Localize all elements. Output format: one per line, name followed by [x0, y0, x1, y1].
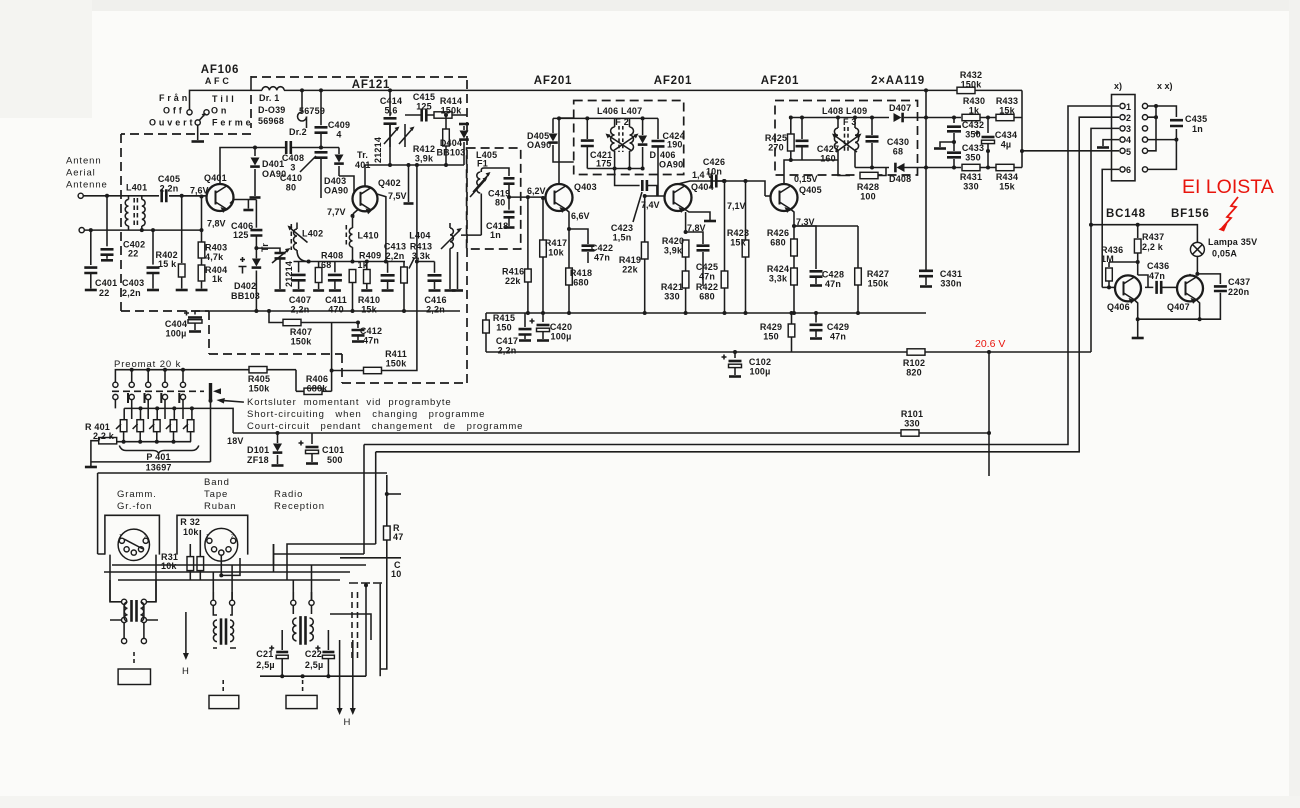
svg-text:R428: R428 [857, 182, 879, 192]
svg-text:AF201: AF201 [761, 75, 800, 87]
svg-text:330: 330 [904, 419, 920, 429]
svg-text:F r å n: F r å n [159, 93, 187, 103]
svg-text:R413: R413 [410, 242, 432, 252]
svg-text:C403: C403 [122, 278, 144, 288]
svg-text:6,2V: 6,2V [527, 186, 546, 196]
svg-text:150: 150 [496, 323, 512, 333]
svg-text:C430: C430 [887, 137, 909, 147]
svg-text:2,2n: 2,2n [291, 305, 310, 315]
svg-text:C102: C102 [749, 357, 771, 367]
svg-text:R421: R421 [661, 282, 683, 292]
svg-text:2,5µ: 2,5µ [256, 660, 275, 670]
svg-text:680k: 680k [307, 384, 329, 394]
svg-text:R406: R406 [306, 374, 328, 384]
svg-text:R433: R433 [996, 96, 1018, 106]
svg-text:R411: R411 [385, 349, 407, 359]
svg-text:1k: 1k [969, 106, 980, 116]
svg-text:4µ: 4µ [1001, 140, 1012, 150]
svg-text:L410: L410 [358, 231, 379, 241]
svg-text:47n: 47n [830, 332, 846, 342]
svg-text:5,6: 5,6 [384, 106, 397, 116]
svg-text:Q406: Q406 [1107, 302, 1130, 312]
svg-text:270: 270 [768, 143, 784, 153]
svg-text:1k: 1k [358, 260, 369, 270]
svg-text:BC148: BC148 [1106, 208, 1146, 220]
svg-text:Antenne: Antenne [66, 180, 108, 191]
svg-text:10: 10 [391, 569, 401, 579]
svg-text:Gr.-fon: Gr.-fon [117, 501, 152, 512]
svg-text:21214: 21214 [373, 137, 383, 163]
svg-text:C405: C405 [158, 174, 180, 184]
svg-text:R410: R410 [358, 295, 380, 305]
svg-text:80: 80 [495, 198, 505, 208]
svg-text:10n: 10n [706, 167, 722, 177]
svg-text:2: 2 [1126, 113, 1131, 123]
svg-text:Kortsluter momentant vid pr: Kortsluter momentant vid programbyte [247, 397, 452, 408]
svg-text:C407: C407 [289, 295, 311, 305]
svg-text:D101: D101 [247, 445, 269, 455]
svg-text:7,4V: 7,4V [641, 200, 660, 210]
svg-text:6: 6 [1126, 165, 1131, 175]
svg-text:47n: 47n [699, 272, 715, 282]
svg-text:Aerial: Aerial [66, 168, 96, 179]
svg-text:Band: Band [204, 477, 230, 488]
svg-text:R429: R429 [760, 322, 782, 332]
svg-text:AF106: AF106 [201, 64, 240, 76]
svg-text:R405: R405 [248, 374, 270, 384]
svg-text:150: 150 [763, 332, 779, 342]
svg-text:L401: L401 [126, 183, 147, 193]
svg-text:2,2 k: 2,2 k [93, 431, 115, 441]
svg-text:x): x) [1114, 81, 1122, 91]
svg-text:R424: R424 [767, 264, 789, 274]
svg-text:R414: R414 [440, 96, 462, 106]
svg-text:Q407: Q407 [1167, 302, 1190, 312]
svg-text:C423: C423 [611, 223, 633, 233]
svg-text:80: 80 [286, 183, 296, 193]
svg-text:C437: C437 [1228, 277, 1250, 287]
svg-text:3,9k: 3,9k [664, 246, 683, 256]
svg-text:D: D [650, 150, 657, 160]
svg-text:R425: R425 [765, 133, 787, 143]
svg-text:2,2 k: 2,2 k [1142, 242, 1164, 252]
svg-text:15 k: 15 k [158, 259, 177, 269]
svg-text:68: 68 [321, 260, 331, 270]
svg-text:820: 820 [906, 368, 922, 378]
svg-text:125: 125 [233, 230, 249, 240]
svg-text:680: 680 [573, 278, 589, 288]
svg-text:R423: R423 [727, 228, 749, 238]
svg-text:R417: R417 [545, 238, 567, 248]
svg-text:A F C: A F C [205, 76, 229, 86]
svg-text:406: 406 [660, 150, 676, 160]
svg-text:100µ: 100µ [749, 367, 770, 377]
svg-text:C417: C417 [496, 336, 518, 346]
svg-text:2,2n: 2,2n [426, 305, 445, 315]
svg-text:Gramm.: Gramm. [117, 489, 157, 500]
svg-text:47n: 47n [825, 279, 841, 289]
svg-text:R416: R416 [502, 267, 524, 277]
svg-text:C416: C416 [424, 295, 446, 305]
svg-text:R434: R434 [996, 172, 1018, 182]
svg-text:7,1V: 7,1V [727, 201, 746, 211]
svg-text:7,5V: 7,5V [388, 191, 407, 201]
svg-text:C428: C428 [822, 270, 844, 280]
svg-text:C412: C412 [360, 326, 382, 336]
svg-text:22k: 22k [622, 265, 638, 275]
svg-text:BF156: BF156 [1171, 208, 1210, 220]
svg-text:150k: 150k [868, 279, 890, 289]
svg-text:7,6V: 7,6V [190, 186, 209, 196]
svg-text:100: 100 [860, 192, 876, 202]
svg-text:1: 1 [1126, 102, 1131, 112]
svg-text:D402: D402 [234, 281, 256, 291]
svg-text:C401: C401 [95, 278, 117, 288]
svg-text:100µ: 100µ [550, 332, 571, 342]
svg-text:C436: C436 [1147, 261, 1169, 271]
svg-text:O n: O n [211, 106, 227, 116]
svg-text:P 401: P 401 [146, 452, 170, 462]
svg-text:2: 2 [231, 534, 234, 540]
svg-text:Dr. 1: Dr. 1 [259, 93, 280, 103]
svg-text:R102: R102 [903, 358, 925, 368]
svg-text:C404: C404 [165, 319, 187, 329]
svg-text:C22: C22 [305, 649, 322, 659]
svg-text:150k: 150k [249, 384, 271, 394]
svg-text:R407: R407 [290, 327, 312, 337]
svg-text:F1: F1 [477, 159, 488, 169]
svg-text:22k: 22k [505, 276, 521, 286]
svg-text:x x): x x) [1157, 81, 1173, 91]
svg-text:D408: D408 [889, 174, 911, 184]
svg-text:1: 1 [206, 534, 209, 540]
svg-text:Dr.2: Dr.2 [289, 127, 307, 137]
svg-text:R427: R427 [867, 269, 889, 279]
svg-text:L404: L404 [409, 231, 430, 241]
svg-text:BB103: BB103 [231, 291, 260, 301]
svg-text:C21: C21 [256, 649, 273, 659]
svg-text:BB103: BB103 [436, 148, 465, 158]
svg-text:47n: 47n [1149, 271, 1165, 281]
svg-text:500: 500 [327, 455, 343, 465]
svg-text:R426: R426 [767, 228, 789, 238]
svg-text:C101: C101 [322, 445, 344, 455]
svg-text:C431: C431 [940, 269, 962, 279]
svg-text:680: 680 [770, 238, 786, 248]
svg-text:2,2n: 2,2n [498, 346, 517, 356]
svg-text:7,8V: 7,8V [207, 219, 226, 229]
svg-text:2×AA119: 2×AA119 [871, 75, 925, 87]
svg-text:D404: D404 [440, 138, 462, 148]
svg-text:C434: C434 [995, 130, 1017, 140]
svg-text:15k: 15k [361, 305, 377, 315]
svg-text:Ruban: Ruban [204, 501, 237, 512]
svg-text:0,05A: 0,05A [1212, 249, 1237, 259]
svg-text:Q402: Q402 [378, 178, 401, 188]
svg-text:4: 4 [336, 130, 341, 140]
svg-text:OA90: OA90 [527, 140, 551, 150]
svg-text:1,5n: 1,5n [613, 233, 632, 243]
svg-text:13697: 13697 [146, 463, 172, 473]
svg-text:350: 350 [965, 153, 981, 163]
svg-text:Q403: Q403 [574, 182, 597, 192]
svg-text:L408 L409: L408 L409 [822, 106, 867, 116]
svg-text:6,6V: 6,6V [571, 211, 590, 221]
svg-text:F e r m e: F e r m e [212, 118, 251, 128]
svg-text:2: 2 [144, 534, 147, 540]
svg-text:18V: 18V [227, 436, 244, 446]
svg-text:470: 470 [328, 305, 344, 315]
svg-text:C433: C433 [962, 143, 984, 153]
svg-text:O u v e r t: O u v e r t [149, 118, 193, 128]
svg-text:4,7k: 4,7k [205, 252, 224, 262]
svg-text:C435: C435 [1185, 114, 1207, 124]
svg-text:2,2n: 2,2n [386, 251, 405, 261]
svg-text:22: 22 [128, 249, 138, 259]
svg-text:C414: C414 [380, 96, 402, 106]
svg-text:Q405: Q405 [799, 185, 822, 195]
svg-text:2,2n: 2,2n [160, 184, 179, 194]
svg-text:AF201: AF201 [534, 75, 573, 87]
svg-text:2,2n: 2,2n [122, 288, 141, 298]
svg-text:22: 22 [99, 288, 109, 298]
svg-text:R420: R420 [662, 236, 684, 246]
svg-text:C413: C413 [384, 242, 406, 252]
svg-text:R415: R415 [493, 313, 515, 323]
svg-text:Reception: Reception [274, 501, 325, 512]
svg-text:Tr.: Tr. [357, 150, 368, 160]
svg-text:150k: 150k [291, 337, 313, 347]
svg-text:47: 47 [393, 532, 403, 542]
svg-text:150k: 150k [961, 80, 983, 90]
svg-text:R408: R408 [321, 251, 343, 261]
svg-text:R412: R412 [413, 144, 435, 154]
svg-text:R432: R432 [960, 70, 982, 80]
svg-text:Tape: Tape [204, 489, 228, 500]
svg-text:D403: D403 [324, 176, 346, 186]
svg-text:OA90: OA90 [659, 160, 683, 170]
svg-text:160: 160 [820, 154, 836, 164]
svg-text:O f f: O f f [163, 106, 183, 116]
svg-text:OA90: OA90 [324, 186, 348, 196]
svg-text:10k: 10k [548, 248, 564, 258]
svg-text:680: 680 [699, 292, 715, 302]
svg-text:5: 5 [1126, 147, 1131, 157]
svg-text:3,3k: 3,3k [769, 274, 788, 284]
svg-text:R418: R418 [570, 268, 592, 278]
svg-text:C420: C420 [550, 322, 572, 332]
svg-text:3: 3 [290, 163, 295, 173]
svg-text:L406 L407: L406 L407 [597, 106, 642, 116]
svg-text:R 32: R 32 [180, 517, 200, 527]
svg-text:125: 125 [416, 102, 432, 112]
svg-text:Q401: Q401 [204, 173, 227, 183]
svg-text:68: 68 [893, 147, 903, 157]
svg-text:R403: R403 [205, 243, 227, 253]
svg-text:10k: 10k [183, 527, 199, 537]
svg-text:3,3k: 3,3k [412, 251, 431, 261]
svg-text:R422: R422 [696, 282, 718, 292]
svg-text:330: 330 [664, 292, 680, 302]
svg-text:C408: C408 [282, 153, 304, 163]
svg-text:Lampa 35V: Lampa 35V [1208, 237, 1257, 247]
svg-text:Tr: Tr [260, 243, 270, 252]
svg-text:47n: 47n [363, 336, 379, 346]
svg-text:15k: 15k [730, 238, 746, 248]
svg-text:H: H [182, 666, 190, 677]
svg-text:C411: C411 [325, 295, 347, 305]
svg-text:R419: R419 [619, 255, 641, 265]
svg-text:R431: R431 [960, 172, 982, 182]
svg-text:150k: 150k [386, 359, 408, 369]
svg-text:3,9k: 3,9k [415, 154, 434, 164]
svg-text:15k: 15k [999, 106, 1015, 116]
svg-text:15k: 15k [999, 182, 1015, 192]
svg-text:100µ: 100µ [165, 329, 186, 339]
svg-text:1n: 1n [1192, 124, 1203, 134]
svg-text:R101: R101 [901, 409, 923, 419]
svg-text:4: 4 [1126, 135, 1131, 145]
svg-text:D407: D407 [889, 103, 911, 113]
svg-text:350: 350 [965, 130, 981, 140]
svg-text:175: 175 [596, 159, 612, 169]
svg-text:1n: 1n [490, 230, 501, 240]
svg-text:C410: C410 [280, 173, 302, 183]
svg-text:H: H [344, 717, 352, 728]
svg-text:2,5µ: 2,5µ [305, 660, 324, 670]
svg-text:C409: C409 [328, 120, 350, 130]
svg-text:7,7V: 7,7V [327, 207, 346, 217]
svg-text:C432: C432 [962, 120, 984, 130]
svg-text:R430: R430 [963, 96, 985, 106]
svg-text:C422: C422 [591, 243, 613, 253]
svg-text:R409: R409 [359, 251, 381, 261]
svg-text:T i l l: T i l l [212, 94, 234, 104]
svg-text:Short-circuiting when chan: Short-circuiting when changing programme [247, 409, 485, 420]
svg-text:Radio: Radio [274, 489, 303, 500]
svg-text:C415: C415 [413, 92, 435, 102]
svg-text:AF201: AF201 [654, 75, 693, 87]
svg-text:1: 1 [119, 534, 122, 540]
svg-text:Antenn: Antenn [66, 156, 102, 167]
svg-text:220n: 220n [1228, 287, 1249, 297]
svg-text:C426: C426 [703, 157, 725, 167]
svg-text:C425: C425 [696, 262, 718, 272]
svg-text:EI LOISTA: EI LOISTA [1182, 176, 1274, 198]
svg-text:190: 190 [667, 140, 683, 150]
svg-text:330n: 330n [940, 279, 961, 289]
svg-text:330: 330 [963, 182, 979, 192]
svg-text:C429: C429 [827, 322, 849, 332]
svg-text:R437: R437 [1142, 232, 1164, 242]
svg-text:1k: 1k [212, 274, 223, 284]
svg-text:Court-circuit pendant chan: Court-circuit pendant changement de prog… [247, 421, 523, 432]
svg-text:10k: 10k [161, 561, 177, 571]
svg-text:20.6 V: 20.6 V [975, 338, 1005, 350]
svg-text:47n: 47n [594, 253, 610, 263]
svg-text:D-O39: D-O39 [258, 105, 286, 115]
svg-text:150k: 150k [441, 106, 463, 116]
svg-text:L402: L402 [302, 229, 323, 239]
svg-text:3: 3 [1126, 124, 1131, 134]
svg-text:AF121: AF121 [352, 79, 391, 91]
svg-text:56968: 56968 [258, 116, 284, 126]
svg-text:ZF18: ZF18 [247, 455, 269, 465]
